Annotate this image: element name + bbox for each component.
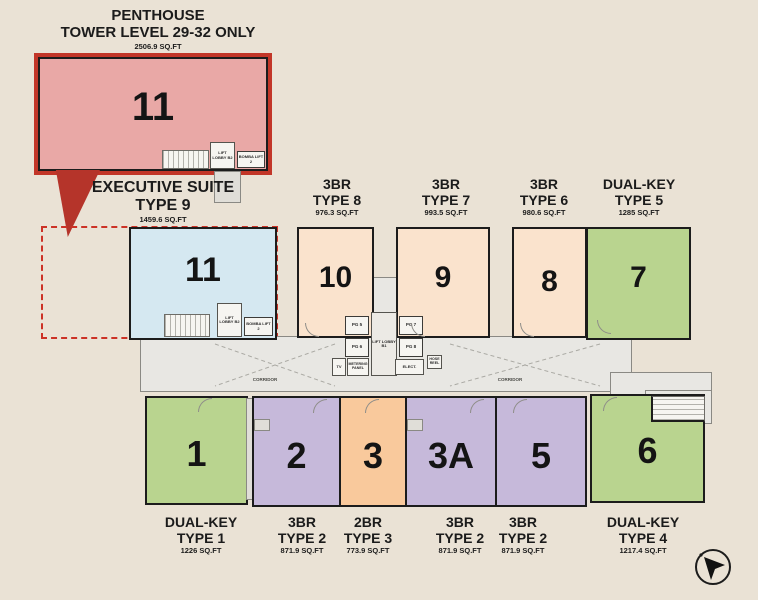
floor-plan: PENTHOUSE TOWER LEVEL 29-32 ONLY 2506.9 … <box>0 0 758 600</box>
unit-11-lift-lobby: LIFT LOBBY B2 <box>217 303 242 337</box>
unit-6-label: DUAL-KEY TYPE 4 1217.4 SQ.FT <box>583 515 703 556</box>
executive-suite-line1: EXECUTIVE SUITE <box>58 179 268 197</box>
lift-pg5: PG 5 <box>345 316 369 335</box>
corridor-label-right: CORRIDOR <box>480 377 540 382</box>
unit-1: 1 <box>145 396 248 505</box>
unit-10-area: 976.3 SQ.FT <box>277 209 397 217</box>
unit-8-number: 8 <box>514 265 585 299</box>
utility-notch <box>407 419 423 431</box>
utility-notch <box>254 419 270 431</box>
unit-7-area: 1285 SQ.FT <box>579 209 699 217</box>
penthouse-title-line1: PENTHOUSE <box>28 8 288 25</box>
compass-icon <box>691 545 735 589</box>
unit-5-label: 3BR TYPE 2 871.9 SQ.FT <box>463 515 583 556</box>
unit-6-number: 6 <box>592 430 703 472</box>
unit-5-number: 5 <box>497 435 585 477</box>
unit-3a-number: 3A <box>407 435 495 477</box>
executive-suite-line2: TYPE 9 <box>58 197 268 215</box>
penthouse-title-line2: TOWER LEVEL 29-32 ONLY <box>28 25 288 42</box>
unit-5-bed-type: 3BR <box>463 515 583 531</box>
unit-6-type: TYPE 4 <box>583 531 703 547</box>
unit-6-stairs <box>651 396 705 422</box>
room-elect: ELECT. <box>395 359 424 375</box>
unit-11-number: 11 <box>131 251 275 290</box>
lift-pg6: PG 6 <box>345 338 369 357</box>
room-metering-panel: METERING PANEL <box>347 358 369 376</box>
lift-pg8: PG 8 <box>399 338 423 357</box>
lift-lobby-b1: LIFT LOBBY B1 <box>371 312 397 376</box>
penthouse-bomba-lift: BOMBA LIFT 2 <box>237 151 265 168</box>
unit-10-type: TYPE 8 <box>277 193 397 209</box>
unit-7-type: TYPE 5 <box>579 193 699 209</box>
unit-11-stairs <box>164 314 210 337</box>
unit-9-number: 9 <box>398 261 488 295</box>
unit-7-label: DUAL-KEY TYPE 5 1285 SQ.FT <box>579 177 699 218</box>
unit-2-number: 2 <box>254 435 339 477</box>
executive-suite-title: EXECUTIVE SUITE TYPE 9 1459.6 SQ.FT <box>58 179 268 224</box>
unit-10-label: 3BR TYPE 8 976.3 SQ.FT <box>277 177 397 218</box>
unit-8: 8 <box>512 227 587 338</box>
penthouse-unit-number: 11 <box>40 85 266 130</box>
unit-10-number: 10 <box>299 261 372 295</box>
unit-6-bed-type: DUAL-KEY <box>583 515 703 531</box>
unit-11-bomba-lift: BOMBA LIFT 2 <box>244 317 273 336</box>
unit-5: 5 <box>495 396 587 507</box>
room-tv: TV <box>332 358 346 376</box>
unit-3-number: 3 <box>341 435 405 477</box>
executive-suite-area: 1459.6 SQ.FT <box>58 216 268 224</box>
penthouse-stairs <box>162 150 209 169</box>
unit-10-bed-type: 3BR <box>277 177 397 193</box>
room-hose-reel: HOSE REEL <box>427 355 442 369</box>
unit-5-type: TYPE 2 <box>463 531 583 547</box>
unit-1-number: 1 <box>147 433 246 475</box>
penthouse-title: PENTHOUSE TOWER LEVEL 29-32 ONLY 2506.9 … <box>28 8 288 51</box>
unit-7-bed-type: DUAL-KEY <box>579 177 699 193</box>
penthouse-area: 2506.9 SQ.FT <box>28 43 288 51</box>
unit-7-number: 7 <box>588 261 689 295</box>
corridor-label-left: CORRIDOR <box>235 377 295 382</box>
penthouse-lift-lobby: LIFT LOBBY B2 <box>210 142 235 169</box>
unit-2: 2 <box>252 396 341 507</box>
unit-5-area: 871.9 SQ.FT <box>463 547 583 555</box>
unit-6-area: 1217.4 SQ.FT <box>583 547 703 555</box>
